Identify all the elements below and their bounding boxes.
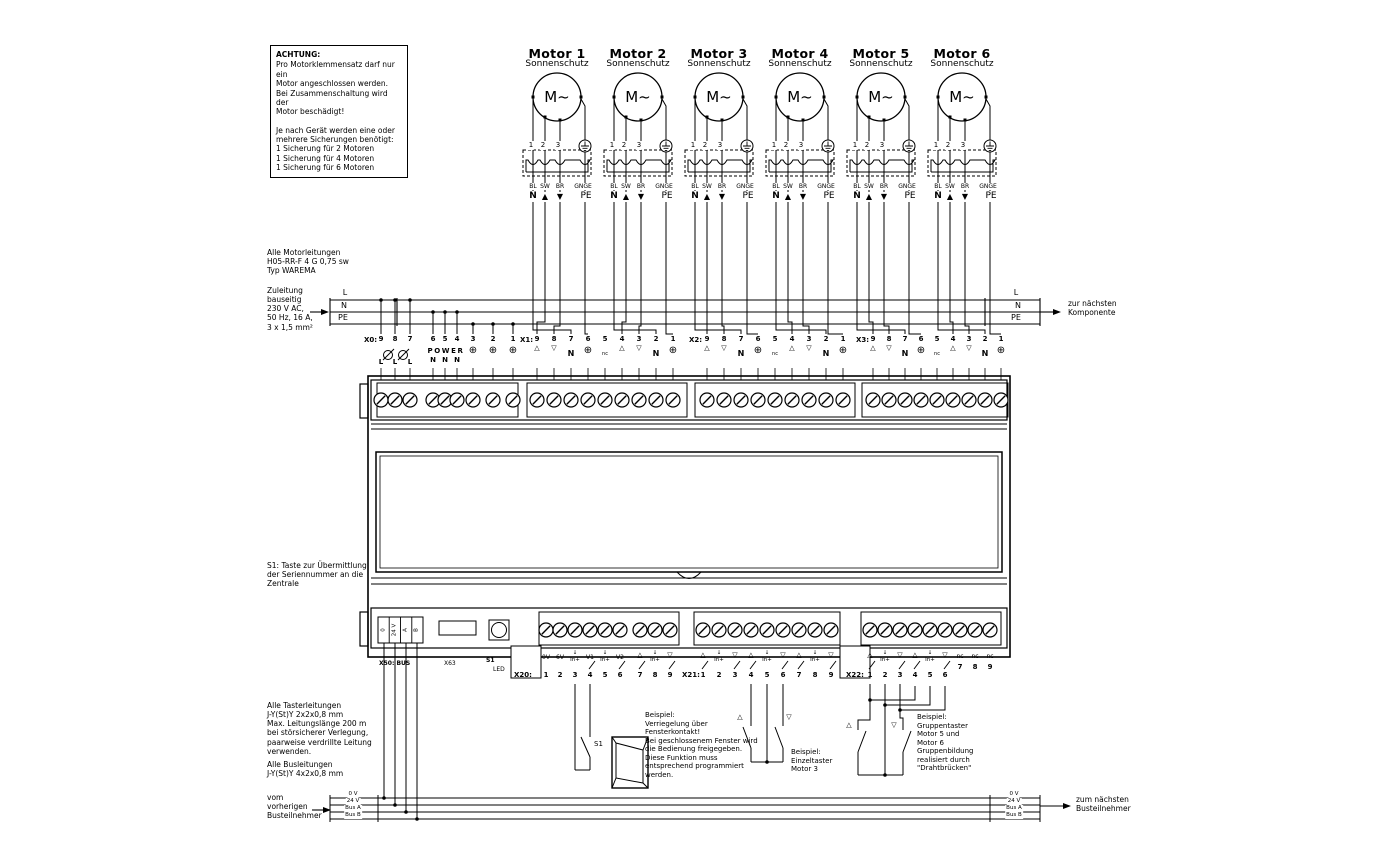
- input-terminal-symbol: ↓ In+: [925, 650, 935, 663]
- terminal-number: 9: [535, 335, 540, 344]
- bus-terminal-label: B: [414, 628, 421, 632]
- direction-terminal-symbol: △: [912, 651, 917, 660]
- wire-color-label: GNGE: [735, 183, 755, 190]
- motor-subtitle: Sonnenschutz: [525, 59, 588, 70]
- direction-terminal-symbol: △: [748, 651, 753, 660]
- motor-terminal-number: 1: [528, 141, 534, 150]
- terminal-number: 5: [603, 335, 608, 344]
- terminal-number: 4: [588, 671, 593, 680]
- direction-terminal-symbol: ▽: [732, 651, 737, 660]
- wire-color-label: BR: [879, 183, 889, 190]
- wire-color-label: SW: [620, 183, 632, 190]
- example-single-text: Beispiel: Einzeltaster Motor 3: [791, 748, 832, 774]
- wire-function-label: N: [771, 191, 781, 202]
- motor-terminal-number: 1: [933, 141, 939, 150]
- motor-terminal-number: 2: [783, 141, 789, 150]
- terminal-number: 3: [471, 335, 476, 344]
- motor-subtitle: Sonnenschutz: [687, 59, 750, 70]
- motor-terminal-number: 3: [717, 141, 723, 150]
- terminal-number: 6: [618, 671, 623, 680]
- terminal-number: 1: [841, 335, 846, 344]
- wire-function-label: N: [933, 191, 943, 202]
- wire-color-label: BR: [555, 183, 565, 190]
- direction-symbol: ▽: [891, 721, 896, 730]
- terminal-number: 3: [573, 671, 578, 680]
- direction-terminal-symbol: ▽: [667, 651, 672, 660]
- terminal-symbol: N: [653, 349, 660, 359]
- direction-symbol: △: [737, 713, 742, 722]
- example-group-text: Beispiel: Gruppentaster Motor 5 und Moto…: [917, 713, 973, 773]
- terminal-number: 3: [733, 671, 738, 680]
- terminal-number: 5: [443, 335, 448, 344]
- data-bus-label: Bus A: [344, 805, 362, 812]
- direction-terminal-symbol: ▽: [897, 651, 902, 660]
- block-label-x1: X1:: [520, 336, 533, 345]
- terminal-number: 5: [935, 335, 940, 344]
- note-motor-cables: Alle Motorleitungen H05-RR-F 4 G 0,75 sw…: [267, 248, 349, 275]
- terminal-symbol: ▽: [966, 344, 971, 353]
- terminal-number: 2: [717, 671, 722, 680]
- motor-terminal-number: 2: [945, 141, 951, 150]
- wire-color-label: BL: [771, 183, 780, 190]
- terminal-number: 6: [431, 335, 436, 344]
- pe-terminal-symbol: ⊕: [469, 345, 477, 357]
- nc-terminal-symbol: nc: [934, 351, 940, 357]
- terminal-number: 5: [928, 671, 933, 680]
- direction-terminal-symbol: △: [637, 651, 642, 660]
- wire-function-label: ▼: [637, 192, 645, 202]
- motor-terminal-number: 3: [798, 141, 804, 150]
- warning-title: ACHTUNG:: [276, 50, 402, 59]
- wire-color-label: BL: [933, 183, 942, 190]
- terminal-symbol: N: [568, 349, 575, 359]
- window-switch-label: S1: [594, 740, 603, 749]
- terminal-number: 4: [913, 671, 918, 680]
- warning-box: ACHTUNG: Pro Motorklemmensatz darf nur e…: [270, 45, 408, 178]
- terminal-number: 5: [603, 671, 608, 680]
- terminal-number: 2: [824, 335, 829, 344]
- nc-terminal-symbol: nc: [772, 351, 778, 357]
- block-label-x20: X20:: [514, 671, 532, 680]
- l-terminal-label: L: [379, 358, 383, 367]
- direction-symbol: ▽: [786, 713, 791, 722]
- wire-color-label: BL: [528, 183, 537, 190]
- warning-text-1: Pro Motorklemmensatz darf nur ein Motor …: [276, 60, 402, 116]
- terminal-symbol: △: [870, 344, 875, 353]
- terminal-number: 8: [813, 671, 818, 680]
- s1-label: S1: [486, 657, 495, 664]
- nc-terminal-symbol: nc: [986, 653, 993, 660]
- block-label-x50: X50: BUS: [379, 660, 410, 667]
- wire-function-label: N: [852, 191, 862, 202]
- wire-function-label: PE: [984, 191, 997, 202]
- terminal-number: 6: [586, 335, 591, 344]
- bus-terminal-label: A: [403, 628, 410, 632]
- terminal-number: 8: [887, 335, 892, 344]
- motor-terminal-number: 2: [540, 141, 546, 150]
- terminal-symbol: ▽: [721, 344, 726, 353]
- terminal-number: 2: [883, 671, 888, 680]
- wire-color-label: BR: [960, 183, 970, 190]
- terminal-symbol: V1: [586, 654, 594, 661]
- wire-function-label: PE: [741, 191, 754, 202]
- terminal-symbol: N: [738, 349, 745, 359]
- wire-color-label: GNGE: [897, 183, 917, 190]
- motor-terminal-number: 2: [864, 141, 870, 150]
- pe-terminal-symbol: ⊕: [917, 345, 925, 357]
- wiring-diagram: ACHTUNG: Pro Motorklemmensatz darf nur e…: [0, 0, 1386, 867]
- input-terminal-symbol: ↓ In+: [570, 650, 580, 663]
- wire-color-label: BR: [636, 183, 646, 190]
- wire-function-label: ▼: [718, 192, 726, 202]
- terminal-number: 3: [637, 335, 642, 344]
- note-s1: S1: Taste zur Übermittlung der Seriennum…: [267, 561, 367, 588]
- n-terminal-label: N: [454, 356, 460, 365]
- terminal-number: 4: [455, 335, 460, 344]
- block-label-x63: X63: [444, 660, 456, 667]
- data-bus-label: 0 V: [347, 791, 358, 798]
- direction-terminal-symbol: ▽: [780, 651, 785, 660]
- motor-terminal-number: 1: [609, 141, 615, 150]
- note-next-component: zur nächsten Komponente: [1068, 299, 1117, 317]
- terminal-number: 8: [722, 335, 727, 344]
- terminal-number: 6: [781, 671, 786, 680]
- terminal-number: 3: [898, 671, 903, 680]
- terminal-number: 7: [797, 671, 802, 680]
- input-terminal-symbol: ↓ In+: [714, 650, 724, 663]
- data-bus-label: Bus A: [1005, 805, 1023, 812]
- wire-color-label: GNGE: [978, 183, 998, 190]
- terminal-number: 1: [999, 335, 1004, 344]
- wire-color-label: SW: [863, 183, 875, 190]
- terminal-number: 7: [903, 335, 908, 344]
- wire-color-label: BL: [852, 183, 861, 190]
- pe-terminal-symbol: ⊕: [754, 345, 762, 357]
- l-terminal-label: L: [408, 358, 412, 367]
- terminal-number: 5: [773, 335, 778, 344]
- terminal-symbol: V2: [616, 654, 624, 661]
- terminal-symbol: △: [950, 344, 955, 353]
- motor-symbol: M~: [544, 88, 570, 106]
- wire-function-label: ▲: [865, 192, 873, 202]
- bus-terminal-label: 0: [381, 628, 388, 632]
- block-label-x3: X3:: [856, 336, 869, 345]
- terminal-number: 7: [569, 335, 574, 344]
- wire-function-label: ▼: [880, 192, 888, 202]
- wire-function-label: ▼: [961, 192, 969, 202]
- terminal-number: 2: [491, 335, 496, 344]
- bus-terminal-label: 24 V: [392, 624, 399, 637]
- terminal-symbol: ▽: [886, 344, 891, 353]
- motor-terminal-number: 1: [690, 141, 696, 150]
- note-from-prev: vom vorherigen Busteilnehmer: [267, 793, 322, 820]
- wire-function-label: ▲: [946, 192, 954, 202]
- terminal-symbol: △: [534, 344, 539, 353]
- terminal-number: 9: [705, 335, 710, 344]
- data-bus-label: 24 V: [1007, 798, 1022, 805]
- wire-function-label: ▲: [541, 192, 549, 202]
- terminal-number: 9: [988, 663, 993, 672]
- terminal-symbol: ▽: [551, 344, 556, 353]
- motor-terminal-number: 3: [879, 141, 885, 150]
- terminal-number: 7: [958, 663, 963, 672]
- terminal-number: 1: [868, 671, 873, 680]
- motor-terminal-number: 1: [852, 141, 858, 150]
- motor-subtitle: Sonnenschutz: [606, 59, 669, 70]
- warning-text-2: Je nach Gerät werden eine oder mehrere S…: [276, 126, 402, 173]
- terminal-number: 9: [668, 671, 673, 680]
- motor-symbol: M~: [787, 88, 813, 106]
- terminal-number: 7: [408, 335, 413, 344]
- note-supply: Zuleitung bauseitig 230 V AC, 50 Hz, 16 …: [267, 286, 313, 332]
- terminal-number: 4: [749, 671, 754, 680]
- terminal-symbol: △: [789, 344, 794, 353]
- bus-label-n: N: [340, 301, 348, 311]
- data-bus-label: 0 V: [1008, 791, 1019, 798]
- terminal-number: 6: [756, 335, 761, 344]
- wire-function-label: N: [690, 191, 700, 202]
- data-bus-label: Bus B: [1005, 812, 1023, 819]
- terminal-number: 2: [654, 335, 659, 344]
- pe-terminal-symbol: ⊕: [997, 345, 1005, 357]
- block-label-x21: X21:: [682, 671, 700, 680]
- wire-color-label: BL: [690, 183, 699, 190]
- data-bus-label: 24 V: [346, 798, 361, 805]
- terminal-number: 1: [511, 335, 516, 344]
- led-label: LED: [493, 666, 505, 673]
- block-label-x2: X2:: [689, 336, 702, 345]
- wire-color-label: GNGE: [654, 183, 674, 190]
- terminal-symbol: N: [982, 349, 989, 359]
- terminal-number: 8: [973, 663, 978, 672]
- terminal-symbol: ▽: [636, 344, 641, 353]
- note-bus-cables: Alle Busleitungen J-Y(St)Y 4x2x0,8 mm: [267, 760, 343, 778]
- terminal-number: 8: [393, 335, 398, 344]
- wire-function-label: N: [528, 191, 538, 202]
- wire-function-label: ▲: [784, 192, 792, 202]
- data-bus-label: Bus B: [344, 812, 362, 819]
- terminal-number: 2: [983, 335, 988, 344]
- motor-symbol: M~: [706, 88, 732, 106]
- motor-symbol: M~: [868, 88, 894, 106]
- terminal-symbol: 0V: [542, 654, 550, 661]
- terminal-symbol: △: [704, 344, 709, 353]
- direction-terminal-symbol: △: [867, 651, 872, 660]
- wire-color-label: BL: [609, 183, 618, 190]
- terminal-number: 3: [807, 335, 812, 344]
- terminal-number: 9: [871, 335, 876, 344]
- motor-subtitle: Sonnenschutz: [849, 59, 912, 70]
- terminal-number: 5: [765, 671, 770, 680]
- input-terminal-symbol: ↓ In+: [650, 650, 660, 663]
- motor-terminal-number: 3: [960, 141, 966, 150]
- terminal-number: 4: [790, 335, 795, 344]
- pe-terminal-symbol: ⊕: [839, 345, 847, 357]
- motor-symbol: M~: [625, 88, 651, 106]
- block-label-x22: X22:: [846, 671, 864, 680]
- input-terminal-symbol: ↓ In+: [810, 650, 820, 663]
- terminal-number: 1: [671, 335, 676, 344]
- direction-terminal-symbol: △: [700, 651, 705, 660]
- pe-terminal-symbol: ⊕: [584, 345, 592, 357]
- motor-symbol: M~: [949, 88, 975, 106]
- nc-terminal-symbol: nc: [602, 351, 608, 357]
- power-caption: POWER: [428, 347, 465, 356]
- terminal-number: 8: [653, 671, 658, 680]
- wire-function-label: ▲: [622, 192, 630, 202]
- wire-color-label: SW: [701, 183, 713, 190]
- l-terminal-label: L: [393, 358, 397, 367]
- wire-color-label: BR: [798, 183, 808, 190]
- input-terminal-symbol: ↓ In+: [880, 650, 890, 663]
- motor-terminal-number: 2: [702, 141, 708, 150]
- terminal-number: 1: [701, 671, 706, 680]
- terminal-number: 8: [552, 335, 557, 344]
- wire-color-label: SW: [944, 183, 956, 190]
- terminal-symbol: N: [902, 349, 909, 359]
- wire-function-label: ▲: [703, 192, 711, 202]
- n-terminal-label: N: [430, 356, 436, 365]
- note-next-bus: zum nächsten Busteilnehmer: [1076, 795, 1131, 813]
- pe-terminal-symbol: ⊕: [489, 345, 497, 357]
- input-terminal-symbol: ↓ In+: [762, 650, 772, 663]
- nc-terminal-symbol: nc: [956, 653, 963, 660]
- terminal-number: 6: [943, 671, 948, 680]
- terminal-symbol: N: [823, 349, 830, 359]
- terminal-number: 7: [638, 671, 643, 680]
- wire-color-label: SW: [782, 183, 794, 190]
- terminal-number: 4: [951, 335, 956, 344]
- wire-function-label: PE: [660, 191, 673, 202]
- wire-function-label: PE: [903, 191, 916, 202]
- terminal-number: 3: [967, 335, 972, 344]
- direction-symbol: △: [846, 721, 851, 730]
- bus-label-pe: PE: [337, 313, 349, 323]
- bus-label-l: L: [343, 288, 347, 298]
- terminal-number: 6: [919, 335, 924, 344]
- terminal-symbol: 6V: [556, 654, 564, 661]
- terminal-symbol: △: [619, 344, 624, 353]
- terminal-symbol: ▽: [806, 344, 811, 353]
- bus-label-l: L: [1014, 288, 1018, 298]
- terminal-number: 7: [739, 335, 744, 344]
- wire-function-label: ▼: [799, 192, 807, 202]
- motor-terminal-number: 2: [621, 141, 627, 150]
- motor-terminal-number: 3: [636, 141, 642, 150]
- direction-terminal-symbol: ▽: [942, 651, 947, 660]
- wire-function-label: N: [609, 191, 619, 202]
- pe-terminal-symbol: ⊕: [669, 345, 677, 357]
- motor-subtitle: Sonnenschutz: [768, 59, 831, 70]
- motor-terminal-number: 3: [555, 141, 561, 150]
- direction-terminal-symbol: ▽: [828, 651, 833, 660]
- n-terminal-label: N: [442, 356, 448, 365]
- input-terminal-symbol: ↓ In+: [600, 650, 610, 663]
- block-label-x0: X0:: [364, 336, 377, 345]
- wire-color-label: SW: [539, 183, 551, 190]
- wire-function-label: PE: [579, 191, 592, 202]
- terminal-number: 9: [379, 335, 384, 344]
- bus-label-n: N: [1014, 301, 1022, 311]
- terminal-number: 2: [558, 671, 563, 680]
- nc-terminal-symbol: nc: [971, 653, 978, 660]
- wire-function-label: ▼: [556, 192, 564, 202]
- direction-terminal-symbol: △: [796, 651, 801, 660]
- motor-terminal-number: 1: [771, 141, 777, 150]
- wire-color-label: BR: [717, 183, 727, 190]
- wire-color-label: GNGE: [573, 183, 593, 190]
- terminal-number: 1: [544, 671, 549, 680]
- motor-subtitle: Sonnenschutz: [930, 59, 993, 70]
- note-taster-cables: Alle Tasterleitungen J-Y(St)Y 2x2x0,8 mm…: [267, 701, 372, 756]
- terminal-number: 4: [620, 335, 625, 344]
- terminal-number: 9: [829, 671, 834, 680]
- wire-color-label: GNGE: [816, 183, 836, 190]
- pe-terminal-symbol: ⊕: [509, 345, 517, 357]
- wire-function-label: PE: [822, 191, 835, 202]
- bus-label-pe: PE: [1010, 313, 1022, 323]
